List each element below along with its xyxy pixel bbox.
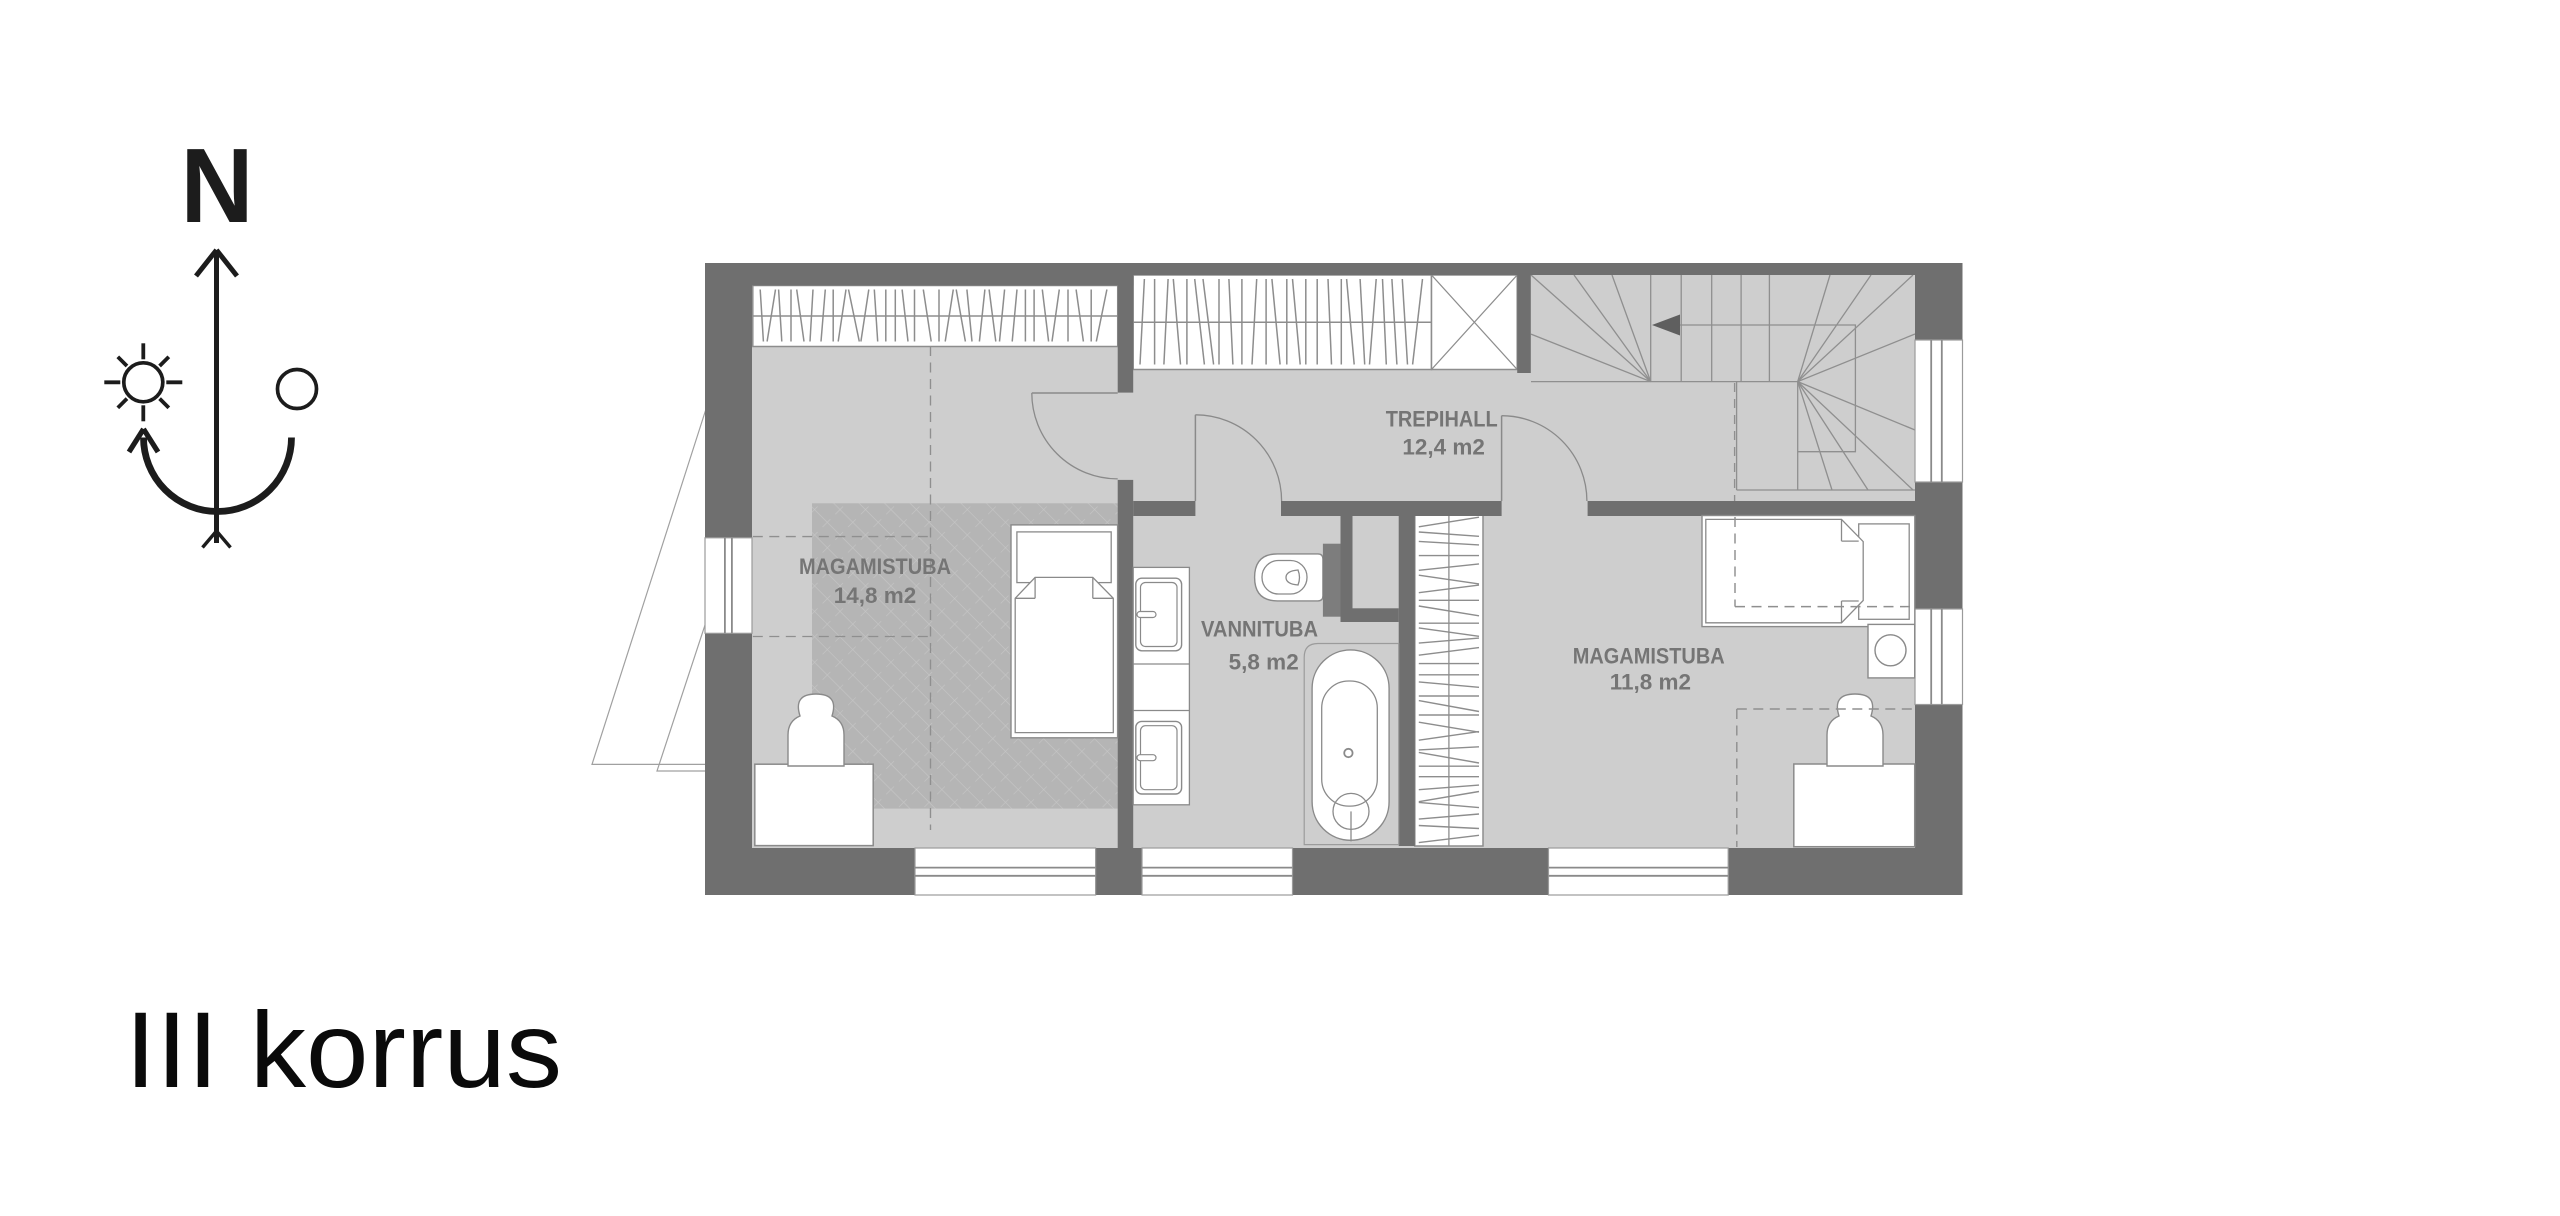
svg-text:5,8 m2: 5,8 m2 — [1229, 649, 1299, 674]
svg-text:14,8 m2: 14,8 m2 — [834, 583, 917, 608]
svg-text:III korrus: III korrus — [125, 989, 562, 1110]
svg-text:VANNITUBA: VANNITUBA — [1201, 617, 1318, 642]
svg-text:TREPIHALL: TREPIHALL — [1386, 407, 1498, 432]
svg-text:N: N — [181, 127, 254, 245]
svg-text:12,4 m2: 12,4 m2 — [1402, 435, 1485, 460]
svg-text:11,8 m2: 11,8 m2 — [1610, 670, 1691, 695]
svg-text:MAGAMISTUBA: MAGAMISTUBA — [799, 554, 951, 579]
svg-text:MAGAMISTUBA: MAGAMISTUBA — [1573, 644, 1725, 669]
